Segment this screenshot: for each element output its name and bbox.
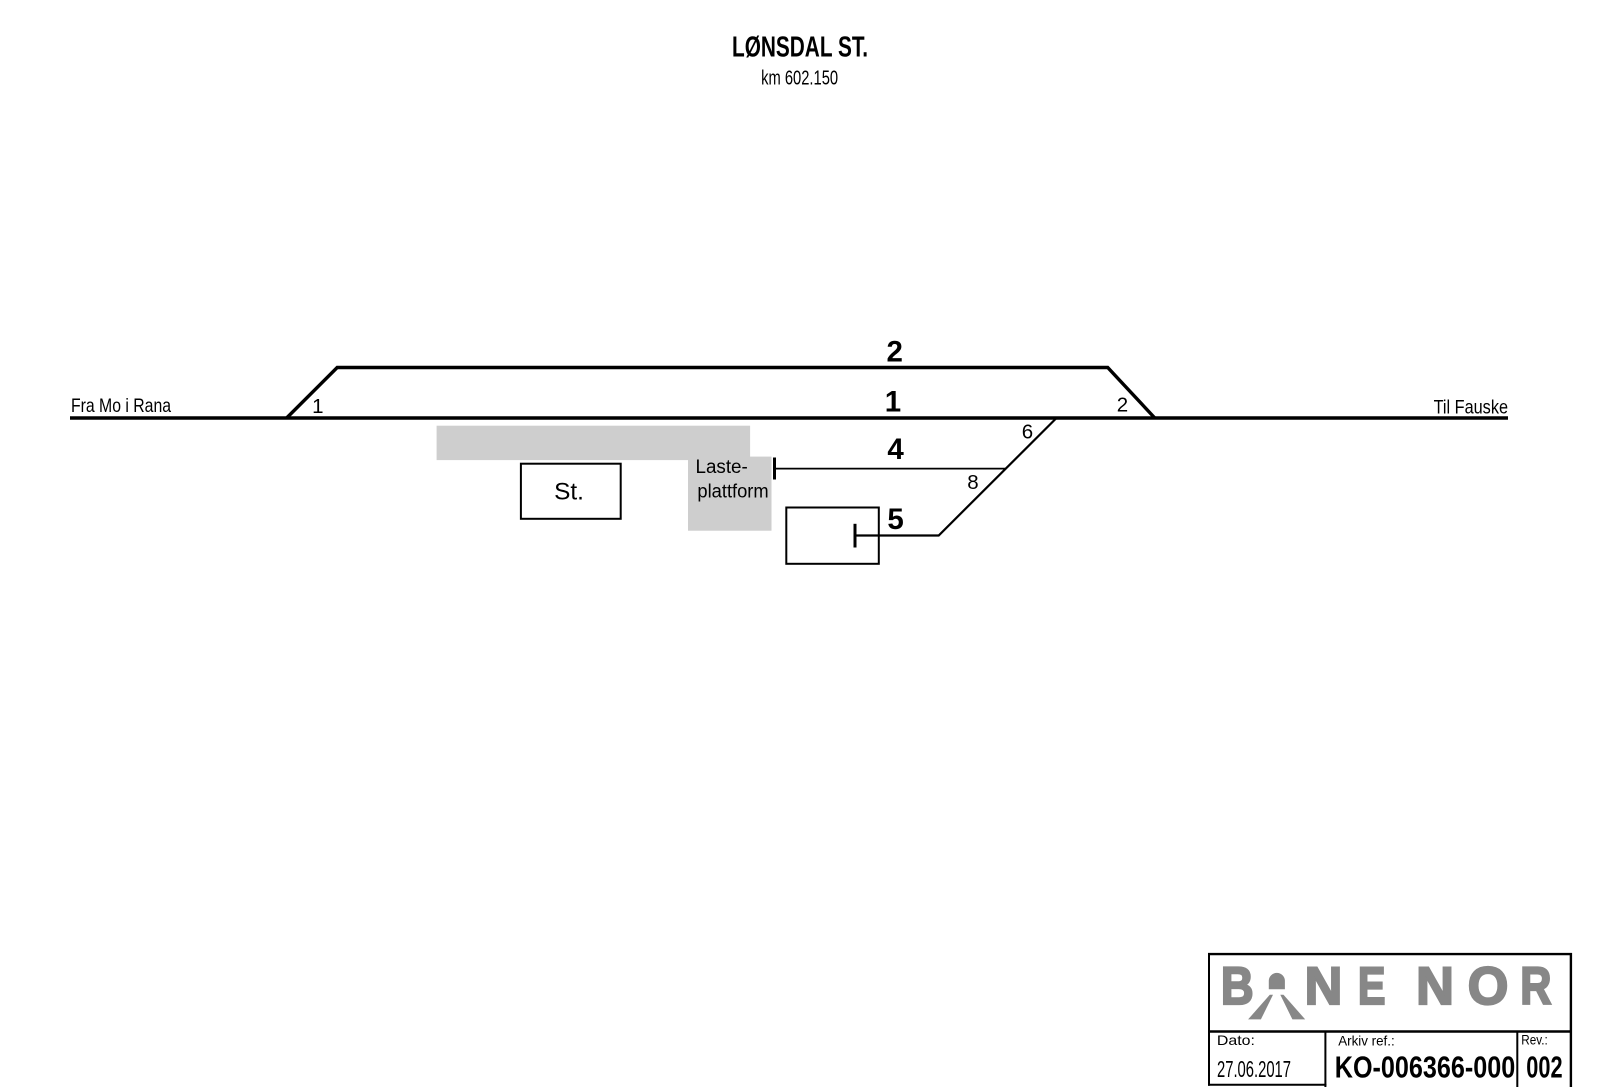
svg-text:N: N	[1416, 957, 1454, 1016]
svg-text:5: 5	[887, 503, 903, 536]
svg-text:Arkiv ref.:: Arkiv ref.:	[1338, 1033, 1395, 1049]
svg-text:B: B	[1221, 957, 1254, 1016]
svg-text:plattform: plattform	[697, 481, 768, 503]
svg-text:4: 4	[887, 433, 904, 466]
svg-text:E: E	[1358, 957, 1386, 1016]
svg-text:Til Fauske: Til Fauske	[1434, 398, 1508, 419]
svg-text:Dato:: Dato:	[1217, 1032, 1255, 1048]
svg-text:km 602.150: km 602.150	[761, 66, 838, 89]
svg-text:27.06.2017: 27.06.2017	[1217, 1056, 1291, 1082]
svg-text:St.: St.	[554, 478, 584, 505]
svg-text:2: 2	[1117, 394, 1128, 417]
svg-text:KO-006366-000: KO-006366-000	[1335, 1050, 1516, 1085]
svg-text:1: 1	[312, 395, 323, 418]
svg-text:Fra Mo i Rana: Fra Mo i Rana	[71, 396, 171, 417]
svg-text:002: 002	[1526, 1049, 1562, 1084]
svg-text:Laste-: Laste-	[696, 456, 748, 478]
svg-text:1: 1	[885, 386, 901, 419]
svg-text:2: 2	[886, 336, 902, 369]
svg-text:6: 6	[1022, 421, 1033, 444]
svg-text:LØNSDAL ST.: LØNSDAL ST.	[732, 32, 868, 64]
svg-text:R: R	[1520, 957, 1551, 1016]
svg-text:O: O	[1468, 957, 1509, 1016]
svg-text:Rev.:: Rev.:	[1521, 1031, 1548, 1047]
svg-text:N: N	[1305, 957, 1343, 1016]
svg-text:8: 8	[967, 471, 978, 494]
